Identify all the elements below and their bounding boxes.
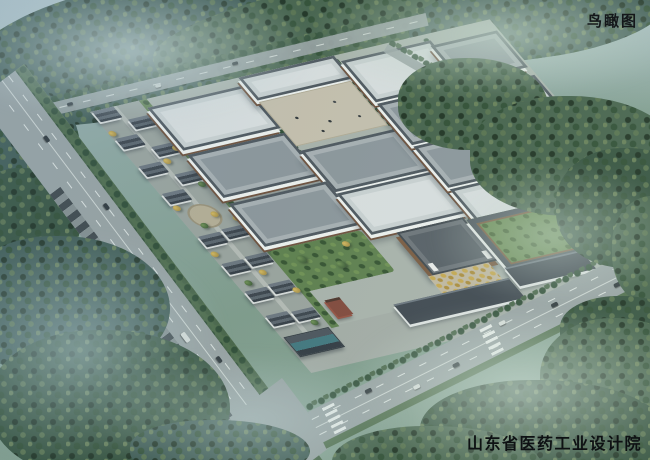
white-column — [481, 250, 492, 259]
car — [498, 320, 506, 327]
white-column — [428, 263, 439, 272]
car — [215, 356, 222, 364]
car — [413, 384, 421, 391]
car — [180, 331, 191, 343]
car — [364, 387, 372, 394]
credit-label: 山东省医药工业设计院 — [467, 430, 642, 454]
crosswalk — [321, 402, 346, 435]
car — [452, 362, 460, 369]
view-label: 鸟瞰图 — [587, 10, 638, 31]
crosswalk — [479, 323, 504, 356]
car — [155, 84, 162, 88]
car — [67, 102, 74, 106]
aerial-rendering: 鸟瞰图 山东省医药工业设计院 — [0, 0, 650, 460]
